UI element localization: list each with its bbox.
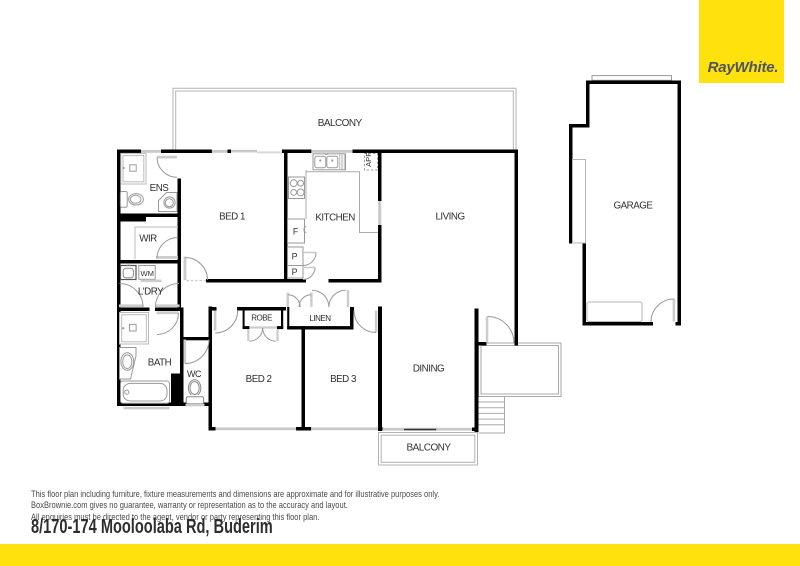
svg-text:BED 3: BED 3	[330, 374, 357, 385]
svg-text:LINEN: LINEN	[309, 314, 331, 323]
svg-text:ENS: ENS	[150, 183, 170, 194]
svg-text:BALCONY: BALCONY	[407, 442, 452, 453]
svg-text:P: P	[292, 267, 298, 277]
svg-text:WIR: WIR	[139, 234, 157, 245]
svg-text:BED 2: BED 2	[246, 374, 272, 385]
svg-text:WM: WM	[140, 269, 154, 278]
svg-text:KITCHEN: KITCHEN	[315, 212, 355, 223]
svg-text:BALCONY: BALCONY	[318, 118, 363, 129]
svg-text:P: P	[292, 252, 298, 262]
svg-text:GARAGE: GARAGE	[614, 201, 654, 212]
svg-text:APP: APP	[364, 152, 373, 167]
svg-text:ROBE: ROBE	[251, 313, 272, 322]
svg-text:L'DRY: L'DRY	[138, 287, 164, 298]
svg-text:WC: WC	[187, 369, 202, 379]
svg-text:BATH: BATH	[148, 358, 172, 369]
svg-text:LIVING: LIVING	[435, 212, 464, 223]
svg-text:DINING: DINING	[413, 364, 444, 375]
svg-text:BED 1: BED 1	[219, 212, 245, 223]
svg-text:F: F	[293, 226, 299, 236]
